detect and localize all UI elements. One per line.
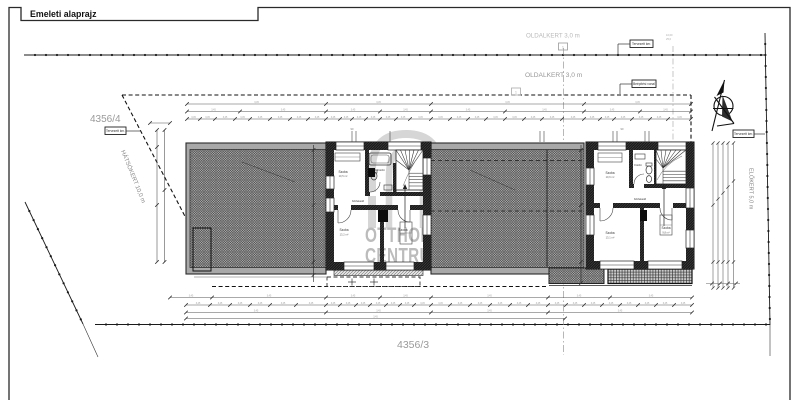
svg-text:Tervezett ker.: Tervezett ker. (632, 42, 651, 46)
svg-text:3,45: 3,45 (420, 303, 425, 305)
svg-text:13,2 m²: 13,2 m² (340, 233, 349, 237)
svg-text:3,45: 3,45 (591, 303, 596, 305)
svg-text:3,45: 3,45 (418, 117, 423, 119)
svg-text:lapostető: lapostető (246, 158, 257, 161)
svg-text:3,45: 3,45 (331, 303, 336, 305)
svg-text:3,45: 3,45 (376, 310, 381, 312)
svg-text:Emeleti alaprajz: Emeleti alaprajz (30, 9, 97, 19)
svg-text:3,45: 3,45 (512, 117, 517, 119)
svg-text:3,45: 3,45 (610, 109, 615, 111)
svg-text:3,45: 3,45 (635, 102, 640, 104)
svg-text:3,45: 3,45 (361, 303, 366, 305)
svg-text:3,45: 3,45 (627, 303, 632, 305)
svg-text:3,45: 3,45 (196, 303, 201, 305)
svg-text:3,45: 3,45 (681, 303, 686, 305)
svg-text:3,45: 3,45 (351, 109, 356, 111)
svg-text:3,45: 3,45 (376, 102, 381, 104)
svg-text:3,45: 3,45 (663, 303, 668, 305)
svg-text:3,45: 3,45 (254, 102, 259, 104)
svg-text:Közlekedő: Közlekedő (352, 199, 365, 203)
svg-text:3,45: 3,45 (211, 109, 216, 111)
svg-text:10,6 m²: 10,6 m² (606, 175, 615, 179)
svg-text:3,45: 3,45 (376, 303, 381, 305)
svg-text:3,45: 3,45 (281, 109, 286, 111)
svg-text:3,45: 3,45 (344, 117, 349, 119)
svg-text:OLDALKERT 3,0 m: OLDALKERT 3,0 m (525, 72, 583, 79)
svg-text:3,45: 3,45 (542, 109, 547, 111)
svg-text:3,45: 3,45 (240, 117, 245, 119)
svg-text:9,8 m²: 9,8 m² (662, 231, 669, 235)
svg-text:3,45: 3,45 (487, 295, 492, 297)
svg-text:3,45: 3,45 (438, 303, 443, 305)
svg-text:3,45: 3,45 (618, 310, 623, 312)
svg-text:3,45: 3,45 (297, 117, 302, 119)
svg-text:3,45: 3,45 (677, 117, 682, 119)
svg-text:1: 1 (515, 91, 517, 95)
svg-text:3,45: 3,45 (357, 117, 362, 119)
svg-text:3,45: 3,45 (498, 303, 503, 305)
svg-text:Közlekedő: Közlekedő (634, 197, 647, 201)
svg-text:Fürdő: Fürdő (634, 163, 642, 167)
svg-text:Szoba: Szoba (339, 228, 348, 232)
svg-text:3,45: 3,45 (278, 117, 283, 119)
svg-text:3,45: 3,45 (577, 295, 582, 297)
svg-text:Tervezett km.: Tervezett km. (106, 129, 125, 133)
svg-text:3,45: 3,45 (573, 303, 578, 305)
svg-text:3,45: 3,45 (315, 117, 320, 119)
svg-text:3,45: 3,45 (493, 117, 498, 119)
svg-text:3,45: 3,45 (475, 117, 480, 119)
svg-text:3,45: 3,45 (281, 303, 286, 305)
svg-text:3,45: 3,45 (590, 117, 595, 119)
svg-text:3,45: 3,45 (609, 303, 614, 305)
svg-text:3,45: 3,45 (649, 295, 654, 297)
svg-text:3,45: 3,45 (373, 316, 378, 318)
svg-text:3,45: 3,45 (466, 109, 471, 111)
svg-text:1: 1 (562, 46, 564, 50)
svg-text:Szoba: Szoba (338, 170, 347, 174)
svg-text:Szoba: Szoba (605, 231, 614, 235)
svg-text:3,45: 3,45 (517, 303, 522, 305)
svg-text:3,45: 3,45 (238, 303, 243, 305)
svg-text:3,45: 3,45 (571, 117, 576, 119)
svg-text:3,45: 3,45 (550, 117, 555, 119)
svg-text:3,45: 3,45 (405, 303, 410, 305)
svg-text:3,45: 3,45 (458, 303, 463, 305)
svg-text:3,45: 3,45 (254, 310, 259, 312)
svg-text:3,45: 3,45 (386, 117, 391, 119)
svg-text:3,45: 3,45 (663, 109, 668, 111)
svg-text:3,45: 3,45 (351, 295, 356, 297)
svg-text:Fürdő: Fürdő (377, 168, 385, 172)
svg-text:3,45: 3,45 (189, 295, 194, 297)
svg-text:3,45: 3,45 (403, 109, 408, 111)
svg-text:3,45: 3,45 (536, 303, 541, 305)
svg-text:10,5 m²: 10,5 m² (339, 174, 348, 178)
svg-text:ELŐKERT 5,0 m: ELŐKERT 5,0 m (748, 168, 755, 210)
svg-text:3,45: 3,45 (555, 303, 560, 305)
svg-text:3,45: 3,45 (505, 102, 510, 104)
svg-text:3,45: 3,45 (478, 303, 483, 305)
svg-text:Tervezett ker.: Tervezett ker. (734, 132, 753, 136)
svg-text:4356/3: 4356/3 (397, 339, 429, 351)
svg-text:3,45: 3,45 (657, 117, 662, 119)
svg-text:Szoba: Szoba (605, 171, 614, 175)
svg-text:10,00: 10,00 (666, 33, 673, 37)
svg-text:3,45: 3,45 (267, 295, 272, 297)
svg-text:3,45: 3,45 (191, 117, 196, 119)
svg-text:4356/4: 4356/4 (90, 114, 121, 125)
svg-text:3,45: 3,45 (531, 117, 536, 119)
svg-text:3,45: 3,45 (487, 310, 492, 312)
svg-text:3,45: 3,45 (331, 117, 336, 119)
svg-text:3,45: 3,45 (605, 117, 610, 119)
svg-text:3,45: 3,45 (403, 295, 408, 297)
svg-text:3,45: 3,45 (401, 117, 406, 119)
svg-text:13,1 m²: 13,1 m² (606, 236, 615, 240)
svg-text:3,45: 3,45 (309, 303, 314, 305)
svg-text:3,45: 3,45 (258, 117, 263, 119)
svg-text:3,45: 3,45 (645, 303, 650, 305)
svg-text:Beépítési vonal: Beépítési vonal (633, 82, 655, 86)
svg-text:Szoba: Szoba (661, 226, 670, 230)
svg-text:OLDALKERT 3,0 m: OLDALKERT 3,0 m (526, 33, 580, 40)
svg-text:3,45: 3,45 (639, 117, 644, 119)
svg-text:3,45: 3,45 (438, 117, 443, 119)
svg-text:3,45: 3,45 (457, 117, 462, 119)
svg-text:3,45: 3,45 (258, 303, 263, 305)
svg-text:25,0: 25,0 (666, 37, 672, 41)
svg-text:3,45: 3,45 (205, 117, 210, 119)
svg-text:3,45: 3,45 (371, 117, 376, 119)
svg-text:3,45: 3,45 (391, 303, 396, 305)
svg-text:3,45: 3,45 (218, 303, 223, 305)
svg-text:3,45: 3,45 (621, 117, 626, 119)
svg-text:3,45: 3,45 (223, 117, 228, 119)
svg-text:3,45: 3,45 (346, 303, 351, 305)
